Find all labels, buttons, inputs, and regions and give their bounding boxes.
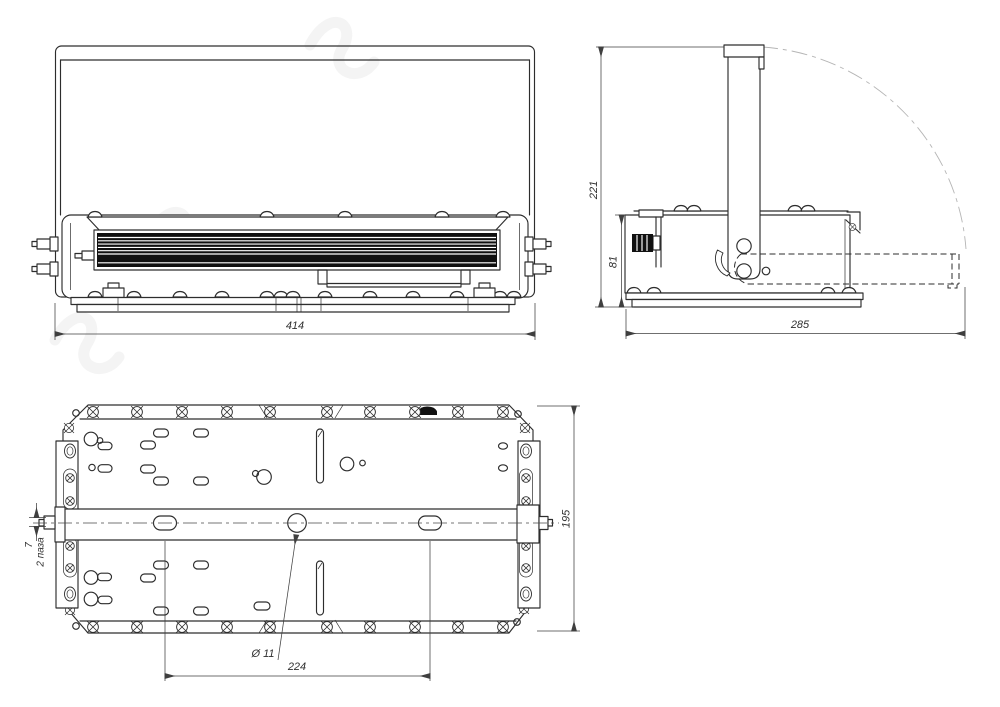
floodlight-dimension-drawing: 414 — [0, 0, 1000, 707]
slot-count-note: 2 паза — [36, 537, 47, 568]
technical-drawing-page: 414 — [0, 0, 1000, 707]
watermark — [55, 22, 374, 368]
cable-gland — [632, 234, 660, 252]
pivot-hole-upper — [737, 239, 751, 253]
dim-side-body-height-label: 81 — [608, 256, 620, 268]
front-view: 414 — [32, 46, 551, 340]
dim-bottom-height-label: 195 — [561, 509, 573, 528]
dim-side-total-height-label: 221 — [588, 181, 600, 200]
lock-pin-hole — [762, 267, 770, 275]
dim-hole-spacing-label: 224 — [287, 661, 306, 673]
base-plate-side — [626, 293, 863, 307]
side-view: 221 81 285 — [588, 45, 966, 339]
dim-side-depth-label: 285 — [790, 319, 810, 331]
bottom-view: 195 224 Ø 11 7 2 паза — [24, 405, 580, 681]
bar-bolt-left — [44, 516, 55, 529]
dim-slot-width-label: 7 — [24, 542, 35, 548]
heatsink — [75, 230, 500, 270]
connector-tab — [82, 251, 94, 260]
pivot-hole-lower — [737, 264, 751, 278]
dim-front-width-label: 414 — [286, 320, 304, 332]
base-plate-front — [71, 298, 515, 313]
hole-diameter-label: Ø 11 — [250, 648, 274, 660]
dim-slot-width: 7 2 паза — [24, 503, 47, 568]
